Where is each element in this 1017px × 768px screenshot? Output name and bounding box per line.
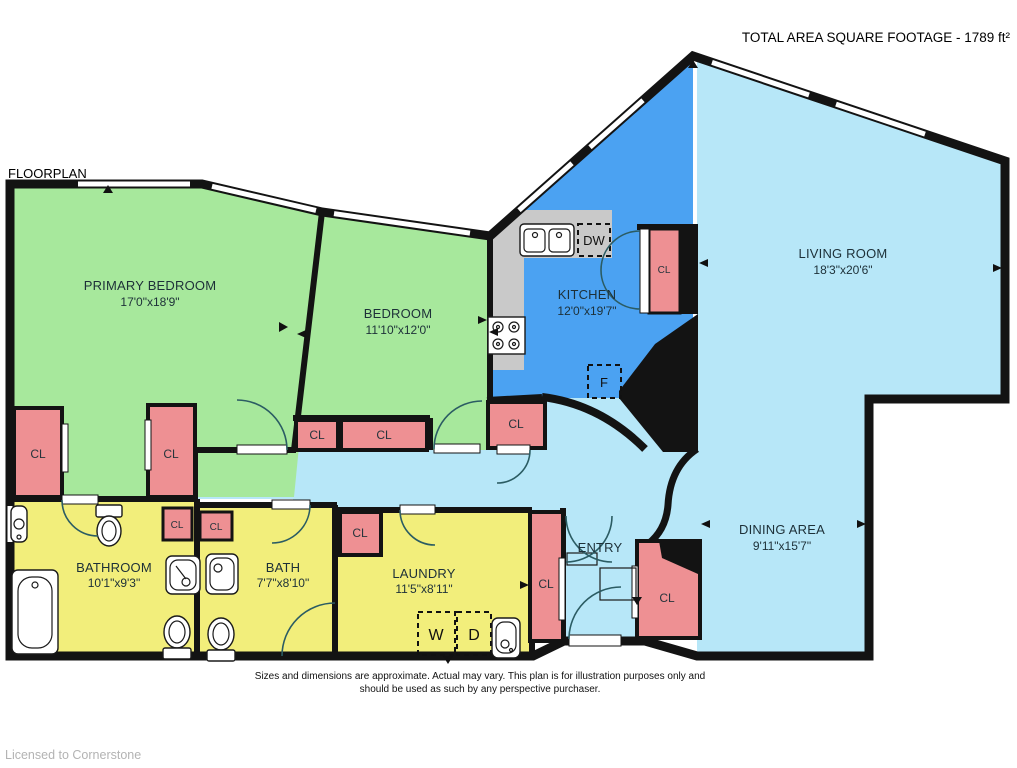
living-room-label: LIVING ROOM <box>799 246 888 261</box>
closet-label: CL <box>376 428 392 442</box>
bathtub-icon <box>12 570 58 654</box>
license-watermark: Licensed to Cornerstone <box>5 748 141 762</box>
dishwasher-label: DW <box>583 233 605 248</box>
living-room-dims: 18'3"x20'6" <box>813 263 872 277</box>
bedroom-dims: 11'10"x12'0" <box>366 323 431 337</box>
wall-mass <box>681 224 698 314</box>
stove-icon <box>488 317 525 354</box>
closet-label: CL <box>210 522 223 533</box>
bathroom-dims: 10'1"x9'3" <box>88 576 140 590</box>
toilet-icon <box>207 618 235 661</box>
closet-label: CL <box>30 447 46 461</box>
pedestal-sink-icon <box>11 506 27 542</box>
toilet-icon <box>96 505 122 546</box>
kitchen-label: KITCHEN <box>558 287 616 302</box>
washer-label: W <box>428 627 444 644</box>
entry-label: ENTRY <box>578 540 623 555</box>
laundry-sink-icon <box>492 618 520 658</box>
floorplan-page: { "header": { "title": "TOTAL AREA SQUAR… <box>0 0 1017 768</box>
dining-area-label: DINING AREA <box>739 522 825 537</box>
vanity-sink-icon <box>206 554 238 594</box>
closet-label: CL <box>508 417 524 431</box>
primary-bedroom-label: PRIMARY BEDROOM <box>84 278 217 293</box>
kitchen-sink-icon <box>520 224 574 256</box>
laundry-dims: 11'5"x8'11" <box>395 582 452 596</box>
total-area-title: TOTAL AREA SQUARE FOOTAGE - 1789 ft² <box>742 30 1011 45</box>
floorplan-label: FLOORPLAN <box>8 166 87 181</box>
floorplan-canvas: TOTAL AREA SQUARE FOOTAGE - 1789 ft² FLO… <box>0 0 1017 768</box>
kitchen-dims: 12'0"x19'7" <box>557 304 616 318</box>
laundry-label: LAUNDRY <box>392 566 455 581</box>
dining-area-dims: 9'11"x15'7" <box>753 539 811 553</box>
primary-bedroom-dims: 17'0"x18'9" <box>120 295 179 309</box>
closet-label: CL <box>659 591 675 605</box>
bedroom-label: BEDROOM <box>364 306 433 321</box>
closet-label: CL <box>352 526 368 540</box>
hallway-area <box>293 450 490 510</box>
bathroom-label: BATHROOM <box>76 560 152 575</box>
closet-label: CL <box>163 447 179 461</box>
closet-label: CL <box>658 265 671 276</box>
closet-label: CL <box>538 577 554 591</box>
closet-label: CL <box>309 428 325 442</box>
toilet-icon <box>163 616 191 659</box>
bath-label: BATH <box>266 560 301 575</box>
bath-dims: 7'7"x8'10" <box>257 576 309 590</box>
disclaimer-line-1: Sizes and dimensions are approximate. Ac… <box>255 671 705 682</box>
disclaimer-line-2: should be used as such by any perspectiv… <box>360 684 601 695</box>
vanity-sink-icon <box>166 556 200 594</box>
dryer-label: D <box>468 627 480 644</box>
closet-label: CL <box>171 520 184 531</box>
fridge-label: F <box>600 375 608 390</box>
